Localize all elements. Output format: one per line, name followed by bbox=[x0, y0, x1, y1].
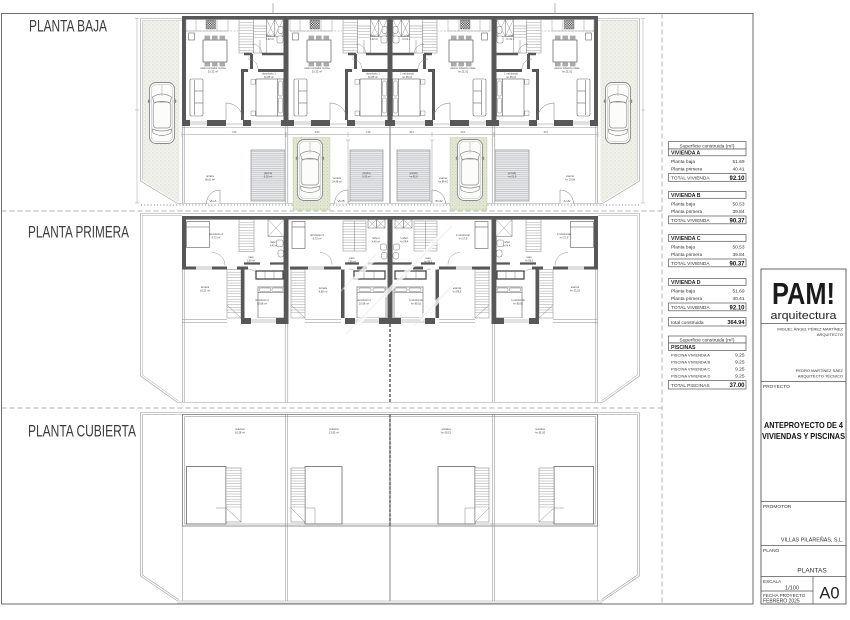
svg-text:PISCINA VIVIENDA C: PISCINA VIVIENDA C bbox=[671, 367, 710, 372]
svg-text:TOTAL VIVIENDA: TOTAL VIVIENDA bbox=[671, 305, 710, 311]
svg-text:Planta primera: Planta primera bbox=[671, 296, 703, 302]
svg-text:VIVIENDA C: VIVIENDA C bbox=[671, 236, 701, 242]
svg-text:PLANTA CUBIERTA: PLANTA CUBIERTA bbox=[28, 423, 136, 441]
svg-text:Planta primera: Planta primera bbox=[671, 252, 703, 258]
svg-text:Superficie construida (m²): Superficie construida (m²) bbox=[680, 143, 735, 149]
svg-text:total construida: total construida bbox=[671, 320, 704, 326]
svg-text:26,38 m²: 26,38 m² bbox=[235, 430, 245, 434]
svg-text:A0: A0 bbox=[819, 585, 839, 603]
svg-text:ARQUITECTO: ARQUITECTO bbox=[817, 332, 843, 337]
svg-text:Superficie construida (m²): Superficie construida (m²) bbox=[680, 338, 735, 344]
svg-text:PAM!: PAM! bbox=[772, 276, 835, 311]
svg-text:Planta baja: Planta baja bbox=[671, 245, 695, 251]
svg-text:51.69: 51.69 bbox=[732, 289, 744, 295]
svg-text:10,68 m²: 10,68 m² bbox=[257, 301, 267, 305]
svg-text:2,69 m²: 2,69 m² bbox=[348, 260, 356, 263]
svg-text:9,25 m²: 9,25 m² bbox=[264, 175, 273, 178]
svg-text:364.94: 364.94 bbox=[727, 320, 745, 326]
svg-text:37.00: 37.00 bbox=[729, 383, 745, 389]
svg-text:50.53: 50.53 bbox=[732, 245, 744, 251]
svg-text:51.69: 51.69 bbox=[732, 159, 744, 165]
svg-text:80,61 m²: 80,61 m² bbox=[205, 178, 215, 181]
svg-text:FEBRERO 2025: FEBRERO 2025 bbox=[763, 599, 800, 605]
svg-text:4,20 m²: 4,20 m² bbox=[370, 38, 378, 41]
svg-text:92.10: 92.10 bbox=[729, 176, 745, 182]
svg-text:VIVIENDA B: VIVIENDA B bbox=[671, 193, 701, 199]
svg-text:11,86 m²: 11,86 m² bbox=[264, 75, 274, 79]
svg-text:9.25: 9.25 bbox=[735, 367, 745, 373]
svg-text:TOTAL VIVIENDA: TOTAL VIVIENDA bbox=[671, 261, 710, 267]
svg-text:9,98 m²: 9,98 m² bbox=[319, 289, 328, 293]
svg-text:39.84: 39.84 bbox=[732, 209, 744, 215]
svg-text:ANTEPROYECTO DE 4: ANTEPROYECTO DE 4 bbox=[764, 420, 843, 430]
svg-text:4.80: 4.80 bbox=[315, 131, 320, 134]
svg-text:4,40 m²: 4,40 m² bbox=[372, 240, 380, 243]
svg-text:90.37: 90.37 bbox=[729, 261, 745, 267]
svg-text:Planta primera: Planta primera bbox=[671, 209, 703, 215]
svg-text:1.98: 1.98 bbox=[366, 131, 371, 134]
svg-text:PISCINAS: PISCINAS bbox=[671, 345, 696, 351]
svg-text:TOTAL VIVIENDA: TOTAL VIVIENDA bbox=[671, 218, 710, 224]
svg-text:23,93 m²: 23,93 m² bbox=[329, 430, 339, 434]
svg-text:Planta baja: Planta baja bbox=[671, 159, 695, 165]
svg-text:24,48 m²: 24,48 m² bbox=[332, 180, 342, 183]
svg-text:VIVIENDA A: VIVIENDA A bbox=[671, 150, 701, 156]
svg-text:9,72 m²: 9,72 m² bbox=[313, 236, 322, 240]
svg-text:PISCINA VIVIENDA A: PISCINA VIVIENDA A bbox=[671, 353, 710, 358]
svg-text:PLANTAS: PLANTAS bbox=[797, 568, 827, 575]
svg-text:10,68 m²: 10,68 m² bbox=[359, 301, 369, 305]
svg-text:VIVIENDA D: VIVIENDA D bbox=[671, 280, 701, 286]
svg-text:arquitectura: arquitectura bbox=[771, 310, 838, 322]
svg-text:PISCINA VIVIENDA B: PISCINA VIVIENDA B bbox=[671, 360, 710, 365]
svg-text:PLANTA PRIMERA: PLANTA PRIMERA bbox=[28, 224, 129, 242]
svg-text:10,23 m²: 10,23 m² bbox=[200, 288, 210, 292]
svg-text:Planta baja: Planta baja bbox=[671, 289, 695, 295]
svg-text:9,25 m²: 9,25 m² bbox=[362, 175, 371, 178]
svg-text:TOTAL PISCINAS: TOTAL PISCINAS bbox=[671, 383, 710, 389]
svg-text:PROMOTOR: PROMOTOR bbox=[763, 504, 792, 510]
svg-text:20,32 m²: 20,32 m² bbox=[208, 69, 218, 73]
svg-text:VILLAS PILAREÑAS, S.L.: VILLAS PILAREÑAS, S.L. bbox=[781, 537, 844, 544]
svg-text:40.41: 40.41 bbox=[732, 296, 744, 302]
svg-text:PEDRO MARTÍNEZ SÁEZ: PEDRO MARTÍNEZ SÁEZ bbox=[796, 368, 844, 373]
svg-text:Viv B: Viv B bbox=[337, 199, 344, 203]
svg-text:9.25: 9.25 bbox=[735, 360, 745, 366]
svg-text:11,86 m²: 11,86 m² bbox=[368, 75, 378, 79]
svg-text:VIVIENDAS Y PISCINAS: VIVIENDAS Y PISCINAS bbox=[762, 431, 845, 441]
svg-text:90.37: 90.37 bbox=[729, 218, 745, 224]
svg-text:9.25: 9.25 bbox=[735, 374, 745, 380]
svg-text:9,72 m²: 9,72 m² bbox=[212, 235, 221, 239]
svg-text:1/100: 1/100 bbox=[785, 586, 799, 592]
svg-text:TOTAL VIVIENDA: TOTAL VIVIENDA bbox=[671, 176, 710, 182]
svg-text:Viv A: Viv A bbox=[210, 199, 218, 203]
svg-text:50.53: 50.53 bbox=[732, 202, 744, 208]
svg-text:MIGUEL ÁNGEL PÉREZ MARTÍNEZ: MIGUEL ÁNGEL PÉREZ MARTÍNEZ bbox=[777, 327, 843, 332]
svg-text:FECHA PROYECTO: FECHA PROYECTO bbox=[763, 593, 806, 598]
svg-text:20,32 m²: 20,32 m² bbox=[312, 69, 322, 73]
svg-text:2,69 m²: 2,69 m² bbox=[247, 259, 255, 262]
svg-text:39.84: 39.84 bbox=[732, 252, 744, 258]
svg-text:ESCALA: ESCALA bbox=[763, 579, 782, 584]
svg-text:PLANO: PLANO bbox=[763, 548, 780, 554]
svg-text:92.10: 92.10 bbox=[729, 305, 745, 311]
svg-text:4,20 m²: 4,20 m² bbox=[266, 38, 274, 41]
svg-text:PISCINA VIVIENDA D: PISCINA VIVIENDA D bbox=[671, 374, 710, 379]
svg-text:40.41: 40.41 bbox=[732, 167, 744, 173]
svg-text:Planta baja: Planta baja bbox=[671, 202, 695, 208]
svg-text:Planta primera: Planta primera bbox=[671, 167, 703, 173]
svg-text:9.25: 9.25 bbox=[735, 353, 745, 359]
svg-text:ARQUITECTO TÉCNICO: ARQUITECTO TÉCNICO bbox=[798, 374, 843, 379]
svg-text:PROYECTO: PROYECTO bbox=[763, 384, 790, 390]
svg-text:7.06: 7.06 bbox=[232, 131, 237, 134]
svg-text:PLANTA BAJA: PLANTA BAJA bbox=[29, 18, 107, 36]
